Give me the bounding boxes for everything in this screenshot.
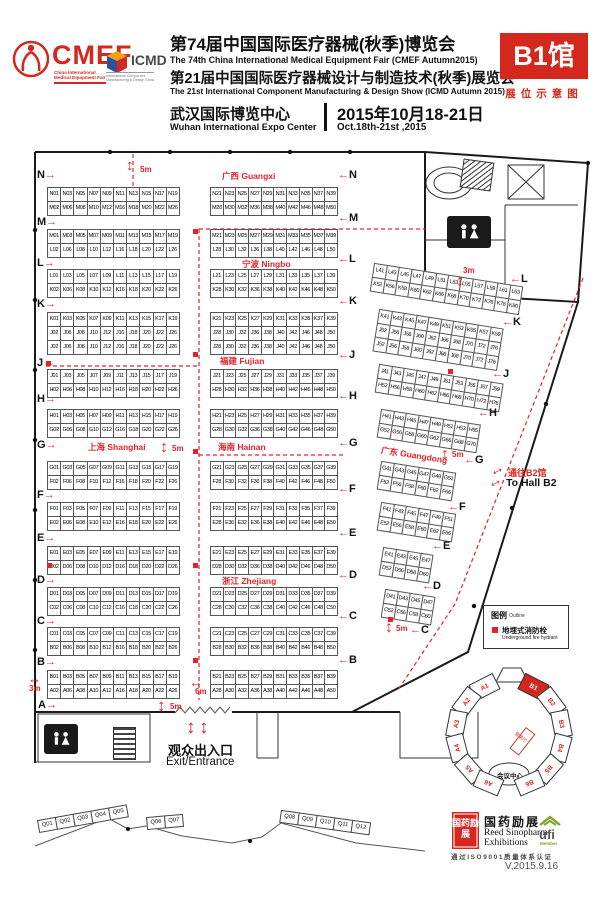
- booth-D11: D11: [113, 587, 127, 602]
- booth-M16: M16: [113, 201, 127, 216]
- booth-row: D21D23D25D27D29D31D33D35D37D39: [211, 587, 338, 602]
- booth-J50: J50: [324, 326, 338, 341]
- booth-N15: N15: [139, 187, 153, 202]
- booth-E35: E35: [299, 546, 313, 561]
- booth-H50: H50: [324, 383, 338, 398]
- booth-D13: D13: [126, 587, 140, 602]
- booth-M46: M46: [299, 201, 313, 216]
- booth-J05: J05: [73, 369, 87, 384]
- booth-D31: D31: [273, 587, 287, 602]
- booth-F18: F18: [126, 475, 140, 490]
- booth-J42: J42: [286, 326, 300, 341]
- row-letter-text: D: [433, 580, 441, 592]
- booth-B01: B01: [47, 670, 61, 685]
- booth-row: J28J30J32J36J38J40J42J46J48J50: [211, 326, 338, 341]
- booth-M12: M12: [100, 201, 114, 216]
- booth-row: B28B30B32B36B38B40B42B46B48B50: [211, 641, 338, 656]
- booth-L31: L31: [273, 269, 287, 284]
- booth-K15: K15: [139, 312, 153, 327]
- booth-M38: M38: [261, 201, 275, 216]
- booth-D28: D28: [210, 560, 224, 575]
- booth-C29: C29: [261, 627, 275, 642]
- booth-F22: F22: [153, 475, 167, 490]
- booth-B19: B19: [166, 670, 180, 685]
- booth-J18: J18: [126, 340, 140, 355]
- row-letter-J: ←J: [338, 350, 355, 361]
- booth-N35: N35: [299, 187, 313, 202]
- fire-hydrant-marker: [388, 617, 393, 622]
- booth-F30: F30: [223, 475, 237, 490]
- booth-B17: B17: [153, 670, 167, 685]
- booth-strip: K01K03K05K07K09K11K13K15K17K19J02J06J08J…: [48, 313, 180, 355]
- booth-row: H01H03H05H07H09H11H13H15H17H19: [48, 409, 180, 424]
- row-letter-text: N: [37, 169, 45, 181]
- region-label: 宁波 Ningbo: [242, 258, 291, 270]
- booth-G25: G25: [235, 461, 249, 476]
- booth-strip: E41E43E45E47D52D56D58D60: [380, 548, 434, 583]
- row-letter-D: ←D: [338, 570, 357, 581]
- arrow-right-icon: →: [46, 439, 57, 451]
- booth-J37: J37: [312, 369, 326, 384]
- floorplan: 观众出入口 Exit/Entrance 通往B2馆 To Hall B2 图例 …: [0, 0, 600, 898]
- booth-J19: J19: [166, 369, 180, 384]
- booth-F01: F01: [47, 502, 61, 517]
- booth-J16: J16: [113, 340, 127, 355]
- booth-row: L02L06L08L10L12L16L18L20L22L26: [48, 243, 180, 258]
- row-letter-text: M: [37, 216, 46, 228]
- booth-F17: F17: [153, 502, 167, 517]
- booth-M48: M48: [312, 201, 326, 216]
- booth-C60: C60: [418, 609, 434, 626]
- booth-L07: L07: [87, 269, 101, 284]
- booth-D33: D33: [286, 587, 300, 602]
- booth-L21: L21: [210, 269, 224, 284]
- booth-F07: F07: [87, 502, 101, 517]
- booth-J22: J22: [153, 326, 167, 341]
- booth-C08: C08: [73, 601, 87, 616]
- booth-B07: B07: [87, 670, 101, 685]
- booth-K48: K48: [312, 283, 326, 298]
- booth-row: K28K30K32K36K38K40K42K46K48K50: [211, 283, 338, 298]
- row-letter-H: ←H: [338, 391, 357, 402]
- row-letter-C: C→: [37, 616, 56, 627]
- booth-L48: L48: [312, 243, 326, 258]
- booth-G07: G07: [87, 461, 101, 476]
- booth-K08: K08: [73, 283, 87, 298]
- booth-C20: C20: [139, 601, 153, 616]
- booth-B12: B12: [100, 641, 114, 656]
- row-letter-text: H: [349, 390, 357, 402]
- booth-K28: K28: [210, 283, 224, 298]
- booth-strip: L41L43L45L47L49L51L53L55L57L59L61L63K52K…: [371, 264, 524, 315]
- booth-K38: K38: [261, 283, 275, 298]
- booth-L37: L37: [312, 269, 326, 284]
- booth-L33: L33: [286, 269, 300, 284]
- row-letter-J: ←J: [492, 369, 509, 380]
- dimension-label: 5m: [452, 450, 464, 459]
- arrow-right-icon: →: [46, 699, 57, 711]
- row-letter-text: D: [37, 574, 45, 586]
- booth-H09: H09: [100, 409, 114, 424]
- booth-E18: E18: [126, 516, 140, 531]
- booth-K02: K02: [47, 283, 61, 298]
- booth-Q06: Q06: [146, 815, 166, 830]
- booth-G09: G09: [100, 461, 114, 476]
- booth-strip: K41K43K45K47K49K51K53K55K57K59J52J56J58J…: [373, 310, 503, 371]
- booth-K36: K36: [248, 283, 262, 298]
- booth-M06: M06: [60, 201, 74, 216]
- fire-hydrant-marker: [193, 658, 198, 663]
- booth-J08: J08: [73, 326, 87, 341]
- arrow-right-icon: →: [45, 656, 56, 668]
- sinopharm-seal-icon: 国药励展: [452, 812, 479, 849]
- booth-A08: A08: [73, 684, 87, 699]
- booth-strip: G01G03G05G07G09G11G13G15G17G19F02F06F08F…: [48, 462, 180, 490]
- booth-strip: F41F43F45F47F49F51E52E56E58E60E62E66: [378, 503, 456, 542]
- booth-M50: M50: [324, 201, 338, 216]
- booth-H01: H01: [47, 409, 61, 424]
- booth-row: C21C23C25C27C29C31C33C35C37C39: [211, 627, 338, 642]
- row-letter-H: ←H: [478, 408, 497, 419]
- booth-strip: D21D23D25D27D29D31D33D35D37D39C28C30C32C…: [211, 588, 338, 616]
- booth-Q05: Q05: [108, 804, 129, 820]
- booth-D42: D42: [286, 560, 300, 575]
- booth-F32: F32: [235, 475, 249, 490]
- booth-H35: H35: [299, 409, 313, 424]
- booth-L39: L39: [324, 269, 338, 284]
- arrow-right-icon: →: [46, 216, 57, 228]
- booth-M09: M09: [100, 229, 114, 244]
- legend-item-en: Underground fire hydrant: [502, 635, 558, 641]
- booth-N07: N07: [87, 187, 101, 202]
- booth-L17: L17: [153, 269, 167, 284]
- booth-H42: H42: [286, 383, 300, 398]
- arrow-left-icon: ←: [338, 390, 349, 402]
- booth-B31: B31: [273, 670, 287, 685]
- booth-H07: H07: [87, 409, 101, 424]
- booth-J46: J46: [299, 340, 313, 355]
- legend-title: 图例: [491, 610, 507, 621]
- booth-K33: K33: [286, 312, 300, 327]
- booth-H13: H13: [126, 409, 140, 424]
- booth-H20: H20: [139, 383, 153, 398]
- booth-E15: E15: [139, 546, 153, 561]
- booth-row: M01M03M05M07M09M11M13M15M17M19: [48, 229, 180, 244]
- booth-B02: B02: [47, 641, 61, 656]
- booth-H26: H26: [166, 383, 180, 398]
- booth-strip: B21B23B25B27B29B31B33B35B37B39A28A30A32A…: [211, 671, 338, 699]
- booth-L40: L40: [273, 243, 287, 258]
- booth-F48: F48: [312, 475, 326, 490]
- booth-strip: E01E03E05E07E09E11E13E15E17E19D02D06D08D…: [48, 547, 180, 575]
- booth-C40: C40: [273, 601, 287, 616]
- version-label: V,2015.9.16: [505, 861, 558, 872]
- booth-D05: D05: [73, 587, 87, 602]
- booth-L16: L16: [113, 243, 127, 258]
- booth-K17: K17: [153, 312, 167, 327]
- booth-B22: B22: [153, 641, 167, 656]
- booth-D32: D32: [235, 560, 249, 575]
- booth-K09: K09: [100, 312, 114, 327]
- booth-M01: M01: [47, 229, 61, 244]
- booth-H25: H25: [235, 409, 249, 424]
- row-letter-F: F→: [37, 490, 55, 501]
- booth-K35: K35: [299, 312, 313, 327]
- booth-D27: D27: [248, 587, 262, 602]
- booth-C48: C48: [312, 601, 326, 616]
- row-letter-G: G→: [37, 440, 57, 451]
- booth-K23: K23: [223, 312, 237, 327]
- ufi-logo-icon: [538, 813, 562, 827]
- arrow-right-icon: →: [45, 169, 56, 181]
- booth-K22: K22: [153, 283, 167, 298]
- booth-strip: N01N03N05N07N09N11N13N15N17N19M02M06M08M…: [48, 188, 180, 216]
- row-letter-M: ←M: [338, 213, 358, 224]
- booth-A26: A26: [166, 684, 180, 699]
- booth-L10: L10: [87, 243, 101, 258]
- sinopharm-name-en2: Exhibitions: [484, 838, 528, 848]
- row-letter-K: ←K: [502, 317, 521, 328]
- booth-B28: B28: [210, 641, 224, 656]
- booth-G20: G20: [139, 423, 153, 438]
- booth-D12: D12: [100, 560, 114, 575]
- booth-strip: F01F03F05F07F09F11F13F15F17F19E02E06E08E…: [48, 503, 180, 531]
- booth-E38: E38: [261, 516, 275, 531]
- booth-K31: K31: [273, 312, 287, 327]
- booth-F39: F39: [324, 502, 338, 517]
- booth-row: F28F30F32F36F38F40F42F46F48F50: [211, 475, 338, 490]
- booth-A06: A06: [60, 684, 74, 699]
- booth-H38: H38: [261, 383, 275, 398]
- booth-G31: G31: [273, 461, 287, 476]
- booth-C32: C32: [235, 601, 249, 616]
- booth-J30: J30: [223, 340, 237, 355]
- booth-J26: J26: [166, 326, 180, 341]
- booth-A18: A18: [126, 684, 140, 699]
- row-letter-E: ←E: [432, 541, 450, 552]
- booth-H32: H32: [235, 383, 249, 398]
- booth-J06: J06: [60, 326, 74, 341]
- booth-L03: L03: [60, 269, 74, 284]
- row-letter-text: A: [38, 699, 46, 711]
- booth-N39: N39: [324, 187, 338, 202]
- booth-H18: H18: [126, 383, 140, 398]
- booth-C33: C33: [286, 627, 300, 642]
- booth-D18: D18: [126, 560, 140, 575]
- booth-H05: H05: [73, 409, 87, 424]
- booth-E11: E11: [113, 546, 127, 561]
- booth-strip: J01J03J05J07J09J11J13J15J17J19H02H06H08H…: [48, 370, 180, 398]
- booth-D17: D17: [153, 587, 167, 602]
- booth-F12: F12: [100, 475, 114, 490]
- booth-G38: G38: [261, 423, 275, 438]
- booth-H37: H37: [312, 409, 326, 424]
- booth-A32: A32: [235, 684, 249, 699]
- arrow-right-icon: →: [44, 532, 55, 544]
- booth-F15: F15: [139, 502, 153, 517]
- booth-row: C02C06C08C10C12C16C18C20C22C26: [48, 601, 180, 616]
- booth-K20: K20: [139, 283, 153, 298]
- row-letter-text: G: [475, 454, 484, 466]
- booth-K18: K18: [126, 283, 140, 298]
- booth-B16: B16: [113, 641, 127, 656]
- booth-G27: G27: [248, 461, 262, 476]
- booth-F03: F03: [60, 502, 74, 517]
- booth-F46: F46: [299, 475, 313, 490]
- booth-D48: D48: [312, 560, 326, 575]
- booth-D37: D37: [312, 587, 326, 602]
- booth-E39: E39: [324, 546, 338, 561]
- arrow-left-icon: ←: [432, 540, 443, 552]
- booth-M33: M33: [286, 229, 300, 244]
- booth-G10: G10: [87, 423, 101, 438]
- booth-J17: J17: [153, 369, 167, 384]
- arrow-left-icon: ←: [464, 454, 475, 466]
- booth-strip: K21K23K25K27K29K31K33K35K37K39J28J30J32J…: [211, 313, 338, 355]
- booth-M30: M30: [223, 201, 237, 216]
- booth-K16: K16: [113, 283, 127, 298]
- booth-H15: H15: [139, 409, 153, 424]
- booth-strip: B01B03B05B07B09B11B13B15B17B19A02A06A08A…: [48, 671, 180, 699]
- booth-K27: K27: [248, 312, 262, 327]
- dimension-label: 5m: [396, 624, 408, 633]
- red-arrow-icon: ↔: [28, 672, 41, 685]
- booth-row: H21H23H25H27H29H31H33H35H37H39: [211, 409, 338, 424]
- booth-C13: C13: [126, 627, 140, 642]
- booth-J02: J02: [47, 340, 61, 355]
- stairs-icon: [113, 727, 136, 760]
- booth-L46: L46: [299, 243, 313, 258]
- booth-E16: E16: [113, 516, 127, 531]
- booth-strip: M01M03M05M07M09M11M13M15M17M19L02L06L08L…: [48, 230, 180, 258]
- booth-B42: B42: [286, 641, 300, 656]
- booth-G17: G17: [153, 461, 167, 476]
- booth-row: D02D06D08D10D12D16D18D20D22D26: [48, 560, 180, 575]
- booth-A38: A38: [261, 684, 275, 699]
- booth-K06: K06: [60, 283, 74, 298]
- booth-A16: A16: [113, 684, 127, 699]
- arrow-left-icon: ←: [422, 580, 433, 592]
- booth-G37: G37: [312, 461, 326, 476]
- booth-H21: H21: [210, 409, 224, 424]
- booth-J10: J10: [87, 326, 101, 341]
- outdoor-booth-group: Q08Q09Q10Q11Q12: [280, 810, 371, 835]
- booth-G05: G05: [73, 461, 87, 476]
- booth-J39: J39: [324, 369, 338, 384]
- booth-E01: E01: [47, 546, 61, 561]
- booth-row: E21E23E25E27E29E31E33E35E37E39: [211, 546, 338, 561]
- booth-C09: C09: [100, 627, 114, 642]
- booth-L30: L30: [223, 243, 237, 258]
- booth-K12: K12: [100, 283, 114, 298]
- booth-L27: L27: [248, 269, 262, 284]
- arrow-left-icon: ←: [338, 169, 349, 181]
- booth-Q07: Q07: [164, 814, 184, 829]
- row-letter-text: K: [513, 316, 521, 328]
- booth-G42: G42: [286, 423, 300, 438]
- booth-row: H02H06H08H10H12H16H18H20H22H26: [48, 383, 180, 398]
- booth-E26: E26: [166, 516, 180, 531]
- booth-B48: B48: [312, 641, 326, 656]
- booth-J29: J29: [261, 369, 275, 384]
- booth-H28: H28: [210, 383, 224, 398]
- booth-D29: D29: [261, 587, 275, 602]
- booth-L38: L38: [261, 243, 275, 258]
- arrow-left-icon: ←: [338, 483, 349, 495]
- booth-L19: L19: [166, 269, 180, 284]
- row-letter-text: C: [421, 624, 429, 636]
- booth-B30: B30: [223, 641, 237, 656]
- fire-hydrant-marker: [448, 369, 453, 374]
- booth-L23: L23: [223, 269, 237, 284]
- booth-J32: J32: [235, 326, 249, 341]
- booth-N03: N03: [60, 187, 74, 202]
- booth-row: J01J03J05J07J09J11J13J15J17J19: [48, 369, 180, 384]
- row-letter-text: D: [349, 569, 357, 581]
- fire-hydrant-marker: [46, 361, 51, 366]
- booth-G36: G36: [248, 423, 262, 438]
- booth-row: K02K06K08K10K12K16K18K20K22K26: [48, 283, 180, 298]
- booth-J20: J20: [139, 326, 153, 341]
- booth-K39: K39: [324, 312, 338, 327]
- booth-E27: E27: [248, 546, 262, 561]
- booth-G01: G01: [47, 461, 61, 476]
- booth-B13: B13: [126, 670, 140, 685]
- booth-L08: L08: [73, 243, 87, 258]
- booth-row: N01N03N05N07N09N11N13N15N17N19: [48, 187, 180, 202]
- booth-F31: F31: [273, 502, 287, 517]
- booth-strip: G41G43G45G47G49G51F52F56F58F60F62F66: [378, 462, 456, 501]
- booth-G46: G46: [299, 423, 313, 438]
- row-letter-text: B: [37, 656, 45, 668]
- booth-L22: L22: [153, 243, 167, 258]
- booth-N23: N23: [223, 187, 237, 202]
- booth-J15: J15: [139, 369, 153, 384]
- booth-G39: G39: [324, 461, 338, 476]
- fire-hydrant-marker: [193, 352, 198, 357]
- to-hall-b2-en: To Hall B2: [506, 477, 557, 489]
- booth-E23: E23: [223, 546, 237, 561]
- booth-F50: F50: [324, 475, 338, 490]
- booth-F20: F20: [139, 475, 153, 490]
- booth-H33: H33: [286, 409, 300, 424]
- row-letter-text: M: [349, 212, 358, 224]
- booth-J21: J21: [210, 369, 224, 384]
- booth-K01: K01: [47, 312, 61, 327]
- booth-C36: C36: [248, 601, 262, 616]
- row-letter-G: ←G: [464, 455, 484, 466]
- booth-strip: C21C23C25C27C29C31C33C35C37C39B28B30B32B…: [211, 628, 338, 656]
- booth-C22: C22: [153, 601, 167, 616]
- booth-C05: C05: [73, 627, 87, 642]
- booth-L02: L02: [47, 243, 61, 258]
- booth-D07: D07: [87, 587, 101, 602]
- booth-N11: N11: [113, 187, 127, 202]
- booth-H39: H39: [324, 409, 338, 424]
- arrow-left-icon: ←: [492, 368, 503, 380]
- booth-B38: B38: [261, 641, 275, 656]
- row-letter-text: L: [349, 253, 356, 265]
- booth-M03: M03: [60, 229, 74, 244]
- booth-E32: E32: [235, 516, 249, 531]
- booth-M35: M35: [299, 229, 313, 244]
- region-label: 海南 Hainan: [218, 441, 266, 453]
- booth-E08: E08: [73, 516, 87, 531]
- booth-B50: B50: [324, 641, 338, 656]
- arrow-left-icon: ←: [338, 654, 349, 666]
- booth-C15: C15: [139, 627, 153, 642]
- booth-L12: L12: [100, 243, 114, 258]
